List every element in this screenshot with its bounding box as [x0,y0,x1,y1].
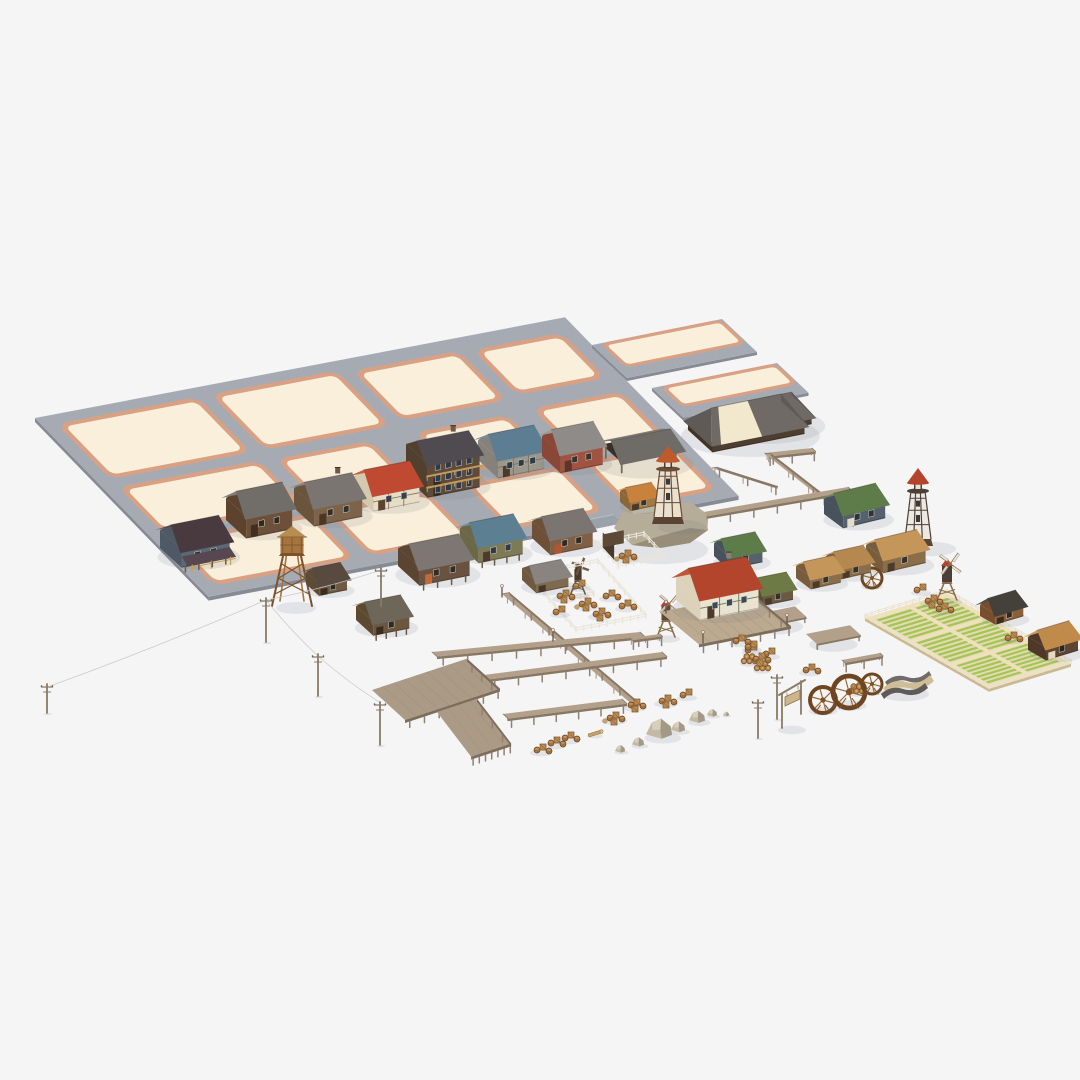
crate-stack [573,598,599,611]
crate-stack [623,699,647,712]
yard-shed [517,559,576,595]
market-table [806,625,861,652]
rock [615,745,629,755]
rock [688,711,710,726]
crate-stack [654,695,678,708]
render-viewport [0,0,1080,1080]
cabin-gray-roof [351,595,418,641]
crate-stack [911,584,931,596]
large-deck-wing [437,699,511,765]
power-lines [50,600,381,703]
curved-bridge [881,671,934,701]
telegraph-pole [374,702,387,747]
farm-cottage [975,590,1030,627]
crate-stack [599,590,621,602]
rock [670,721,690,734]
log [587,730,603,739]
telegraph-pole [752,700,765,740]
crate-stack [550,606,570,618]
telegraph-pole [312,654,325,698]
crate-stack [601,712,627,725]
pier-lamppost [500,584,503,597]
village-asset-pack-scene [0,0,1080,1080]
farm-barn [1023,621,1080,663]
village-sign [778,680,806,734]
rock [707,709,721,719]
crate-stack [799,664,821,676]
crate-stack [677,689,697,701]
telegraph-pole [41,684,54,715]
rock-small [723,712,731,718]
barrel-stack [558,732,580,744]
bench [842,653,883,672]
